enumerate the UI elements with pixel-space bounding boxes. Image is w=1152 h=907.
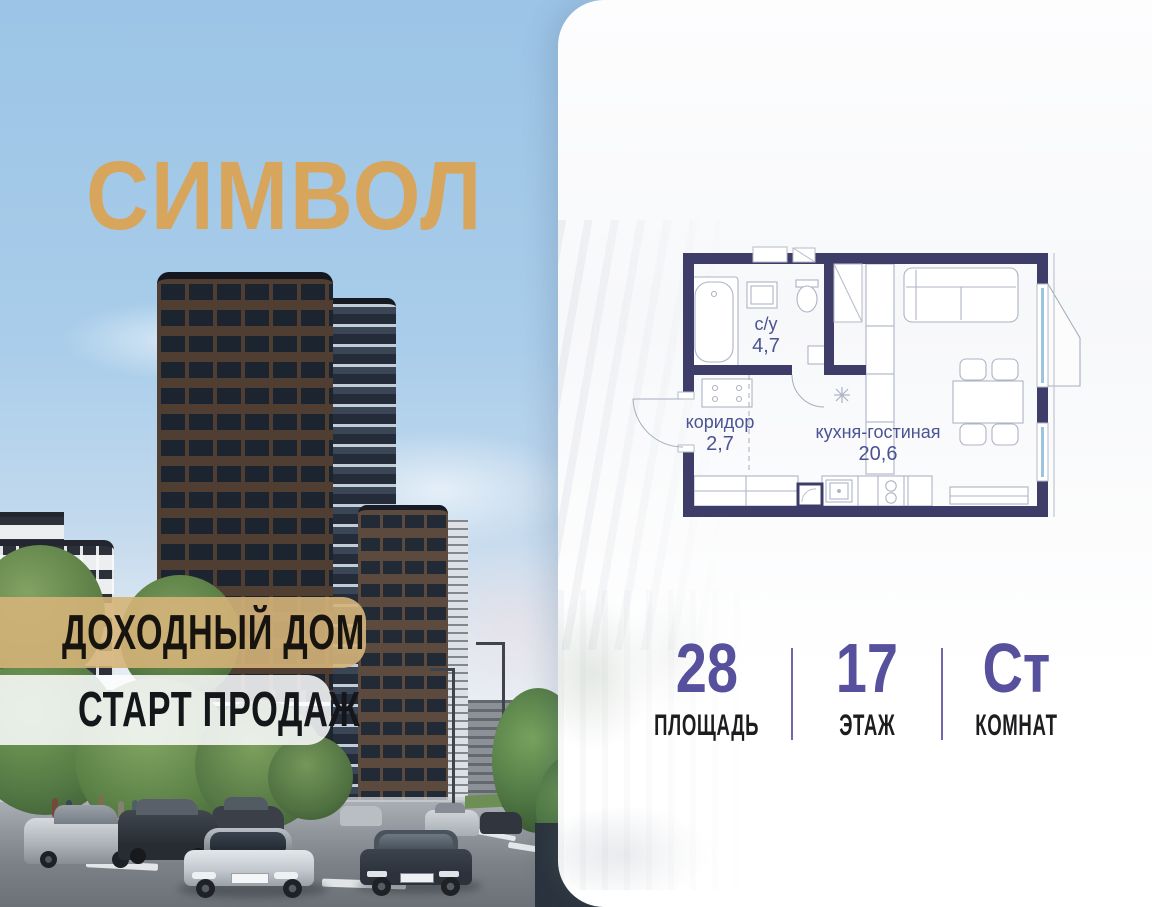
room-label-bathroom: с/у — [754, 314, 777, 334]
banner-rental-house: ДОХОДНЫЙ ДОМ — [0, 597, 366, 668]
chair — [992, 359, 1018, 380]
room-area-bathroom: 4,7 — [752, 335, 780, 357]
banner-rental-house-label: ДОХОДНЫЙ ДОМ — [62, 605, 365, 661]
kitchen-shaft — [798, 484, 822, 506]
room-area-corridor: 2,7 — [706, 433, 734, 455]
car-wheel — [372, 877, 391, 896]
stat-floor: 17 ЭТАЖ — [793, 636, 940, 748]
silver-sedan — [184, 828, 314, 894]
car — [340, 806, 382, 826]
banner-sales-start: СТАРТ ПРОДАЖ — [0, 675, 331, 745]
room-area-kitchen-living: 20,6 — [859, 443, 898, 465]
car-wheel — [196, 879, 215, 898]
room-label-kitchen-living: кухня-гостиная — [816, 422, 941, 442]
balcony — [1048, 284, 1080, 386]
entrance-door-arc — [633, 399, 683, 447]
chair — [960, 359, 986, 380]
stat-rooms: Ст КОМНАТ — [943, 636, 1090, 748]
stat-rooms-label: КОМНАТ — [975, 709, 1057, 743]
room-label-corridor: коридор — [686, 412, 755, 432]
stat-area: 28 ПЛОЩАДЬ — [622, 636, 791, 748]
dining-table — [953, 381, 1023, 423]
bath-cabinet — [808, 346, 826, 364]
toilet — [797, 286, 817, 312]
street-lamp — [452, 668, 455, 808]
stat-floor-label: ЭТАЖ — [839, 709, 895, 743]
info-panel: с/у 4,7 коридор 2,7 кухня-гостиная 20,6 … — [558, 0, 1152, 907]
bathtub — [690, 277, 738, 367]
stats-row: 28 ПЛОЩАДЬ 17 ЭТАЖ Ст КОМНАТ — [622, 636, 1090, 748]
dark-minivan — [360, 830, 472, 892]
stat-floor-value: 17 — [836, 636, 898, 700]
listing-card: СИМВОЛ ДОХОДНЫЙ ДОМ СТАРТ ПРОДАЖ — [0, 0, 1152, 907]
stat-area-value: 28 — [675, 636, 737, 700]
banner-sales-start-label: СТАРТ ПРОДАЖ — [78, 682, 360, 738]
stat-area-label: ПЛОЩАДЬ — [654, 709, 759, 743]
stat-rooms-value: Ст — [982, 636, 1050, 700]
snowflake-icon — [834, 387, 850, 403]
kitchen-tall-cabinet — [866, 326, 894, 374]
chair — [992, 424, 1018, 445]
floorplan: с/у 4,7 коридор 2,7 кухня-гостиная 20,6 — [620, 240, 1085, 530]
car-wheel — [441, 877, 460, 896]
project-logo: СИМВОЛ — [86, 140, 483, 252]
kitchen-tall-cabinet — [866, 264, 894, 326]
hall-cabinet — [702, 379, 752, 407]
right-brick-tower — [358, 505, 448, 820]
door-jamb — [678, 445, 694, 452]
bathroom-door-arc — [792, 375, 824, 407]
chair — [960, 424, 986, 445]
door-jamb — [678, 392, 694, 399]
vent-box — [753, 247, 787, 262]
car-wheel — [283, 879, 302, 898]
tree — [268, 735, 353, 820]
car — [480, 812, 522, 834]
fridge — [866, 374, 894, 422]
